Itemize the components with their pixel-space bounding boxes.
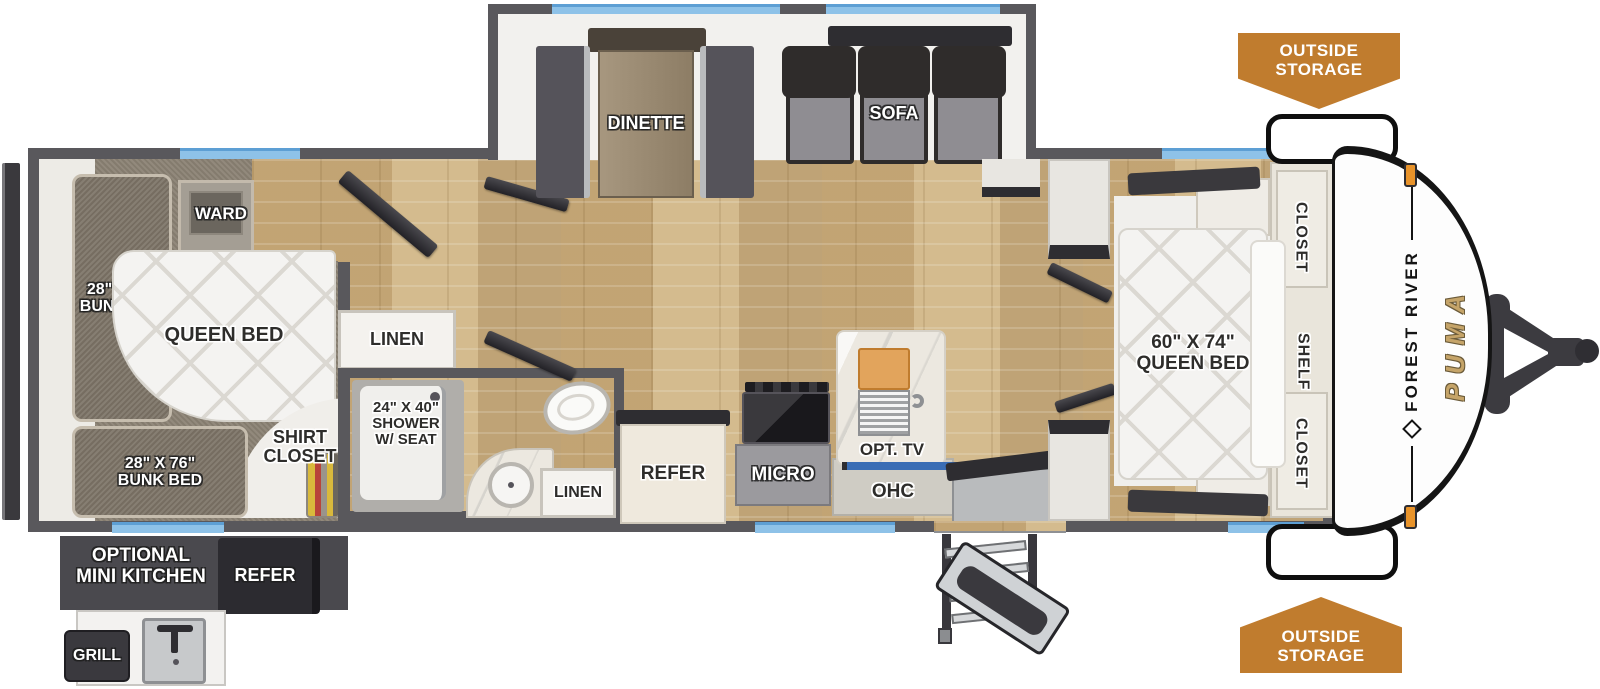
- cutting-board: [858, 348, 910, 390]
- window-kitchen-bottom: [755, 522, 895, 533]
- outdoor-sink-drain: [173, 659, 179, 665]
- sofa-seat-left: [786, 90, 854, 164]
- model-name-wrap: PUMA: [1439, 243, 1471, 443]
- rear-bedroom-doorway-floor: [252, 159, 338, 261]
- outside-storage-badge-top: OUTSIDE STORAGE: [1238, 33, 1400, 109]
- bath-sink-drain: [508, 482, 514, 488]
- brand-line-left: [1411, 446, 1413, 502]
- front-closet-top-label: CLOSET: [1292, 178, 1309, 296]
- sofa: SOFA: [786, 46, 1002, 164]
- sofa-seat-middle: [860, 90, 928, 164]
- window-rear-bedroom-top: [180, 148, 300, 159]
- sofa-headrest-middle: [858, 46, 930, 98]
- outdoor-sink-faucet-bar: [157, 625, 193, 632]
- linen-bottom-label: LINEN: [554, 484, 602, 501]
- hitch-a-frame-gap: [1504, 328, 1550, 378]
- front-bed-headboard: [1250, 240, 1286, 468]
- ohc-label: OHC: [848, 482, 938, 503]
- dinette-table-top: [588, 28, 706, 52]
- outside-storage-badge-bottom: OUTSIDE STORAGE: [1240, 597, 1402, 673]
- hitch-ball: [1575, 339, 1599, 363]
- microwave: MICRO: [735, 444, 831, 506]
- outside-storage-bottom-label: OUTSIDE STORAGE: [1277, 627, 1364, 665]
- front-queen-bed: 60" X 74" QUEEN BED: [1118, 228, 1268, 480]
- slide-window-left: [552, 4, 780, 14]
- step-foot-left: [938, 628, 952, 644]
- bunk-bed-bottom: 28" X 76" BUNK BED: [72, 426, 248, 518]
- outdoor-refer-label: REFER: [234, 566, 295, 585]
- marker-light-bottom: [1404, 505, 1417, 529]
- sofa-seat-right: [934, 90, 1002, 164]
- sofa-headrest-right: [932, 46, 1006, 98]
- kitchen-faucet: [910, 394, 924, 408]
- linen-top-label: LINEN: [370, 330, 424, 349]
- brand-line-right: [1411, 184, 1413, 240]
- storage-compartment-bottom: [1266, 524, 1398, 580]
- dinette-bench-left: [536, 46, 590, 198]
- opt-tv-label: OPT. TV: [846, 441, 938, 459]
- toilet-seat: [554, 390, 597, 424]
- microwave-label: MICRO: [751, 465, 814, 486]
- refrigerator-label: REFER: [641, 464, 705, 485]
- range-cooktop: [742, 392, 830, 444]
- range-knobs: [745, 382, 829, 392]
- sink-cover: [858, 390, 910, 436]
- outdoor-kitchen-label: OPTIONAL MINI KITCHEN: [66, 546, 216, 587]
- sofa-label: SOFA: [844, 104, 944, 123]
- outdoor-grill: GRILL: [64, 630, 130, 682]
- wardrobe-label: WARD: [186, 205, 256, 223]
- sofa-headrest-left: [782, 46, 856, 98]
- outdoor-grill-label: GRILL: [73, 647, 121, 664]
- front-bedroom-wall-bottom: [1048, 420, 1110, 521]
- refrigerator: REFER: [620, 424, 726, 524]
- front-closet-bottom-label: CLOSET: [1292, 392, 1309, 514]
- dinette-label: DINETTE: [607, 114, 684, 133]
- dinette-table: DINETTE: [598, 50, 694, 198]
- shower-label: 24" X 40" SHOWER W/ SEAT: [352, 400, 460, 449]
- marker-light-top: [1404, 163, 1417, 187]
- entry-opening: [934, 521, 1066, 533]
- model-name: PUMA: [1440, 285, 1471, 402]
- slide-window-right: [826, 4, 1000, 14]
- front-cap-brand: FOREST RIVER: [1400, 173, 1424, 513]
- front-queen-bed-label: 60" X 74" QUEEN BED: [1137, 333, 1250, 374]
- rear-queen-bed-label: QUEEN BED: [165, 325, 284, 347]
- front-bedroom-wall-top: [1048, 159, 1110, 259]
- outdoor-refer: REFER: [218, 538, 320, 614]
- linen-closet-top: LINEN: [338, 310, 456, 370]
- rear-bumper: [2, 163, 20, 520]
- sofa-end-wall: [982, 159, 1040, 197]
- brand-name: FOREST RIVER: [1402, 250, 1422, 412]
- outside-storage-top-label: OUTSIDE STORAGE: [1275, 41, 1362, 79]
- forest-river-logo-icon: [1402, 419, 1422, 439]
- floorplan: 28" X 65" BUNK BED WARD QUEEN BED SHIRT …: [0, 0, 1600, 689]
- sofa-shelf: [828, 26, 1012, 46]
- dinette-bench-right: [700, 46, 754, 198]
- bunk-bed-bottom-label: 28" X 76" BUNK BED: [118, 455, 202, 490]
- linen-closet-bottom: LINEN: [540, 468, 616, 518]
- outdoor-sink: [142, 618, 206, 684]
- window-rear-bedroom-bottom: [112, 522, 224, 533]
